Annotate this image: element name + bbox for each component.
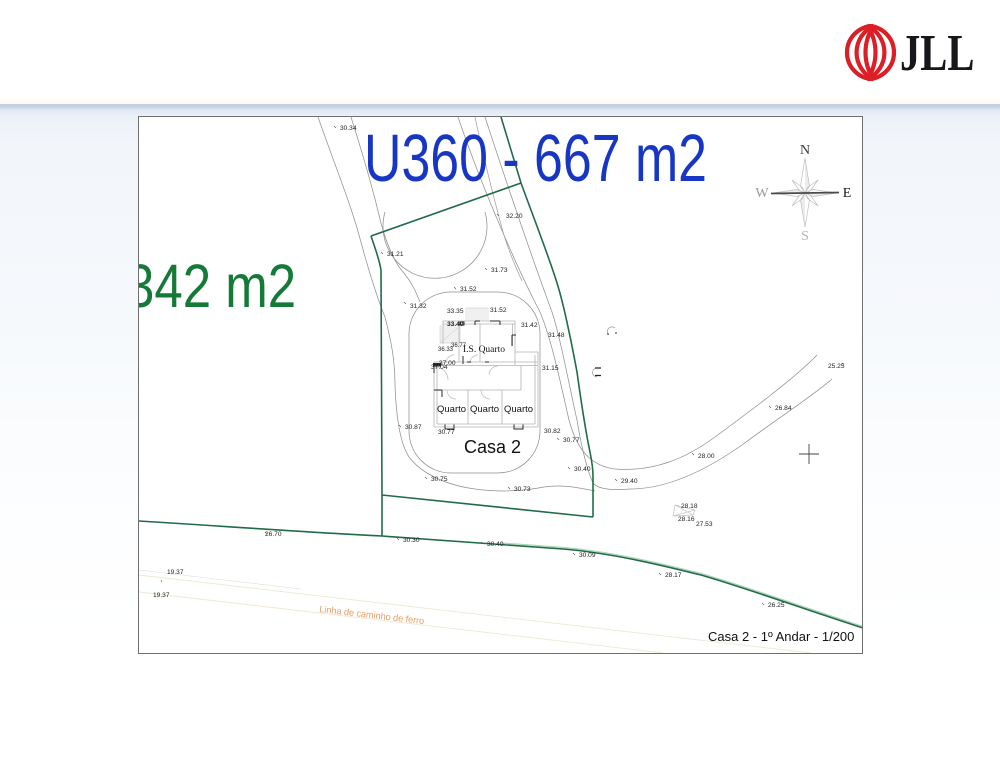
svg-text:33.35: 33.35 — [447, 308, 464, 315]
svg-text:33.40: 33.40 — [447, 321, 464, 328]
svg-text:30.75: 30.75 — [431, 476, 448, 483]
svg-text:S: S — [801, 229, 809, 244]
svg-text:N: N — [800, 143, 810, 158]
svg-text:30.87: 30.87 — [405, 424, 422, 431]
svg-text:19.37: 19.37 — [167, 569, 184, 576]
svg-text:30.30: 30.30 — [403, 537, 420, 544]
svg-text:Casa 2: Casa 2 — [464, 437, 521, 457]
svg-text:37.04: 37.04 — [431, 364, 448, 371]
svg-text:30.82: 30.82 — [544, 428, 561, 435]
svg-text:31.15: 31.15 — [542, 365, 559, 372]
svg-text:32.20: 32.20 — [506, 213, 523, 220]
svg-text:W: W — [755, 186, 769, 201]
svg-text:30.73: 30.73 — [514, 486, 531, 493]
svg-text:30.40: 30.40 — [487, 541, 504, 548]
svg-text:26.70: 26.70 — [265, 531, 282, 538]
svg-text:Quarto: Quarto — [437, 404, 466, 415]
svg-text:Quarto: Quarto — [470, 404, 499, 415]
svg-text:I.S. Quarto: I.S. Quarto — [463, 345, 505, 355]
svg-text:30.77: 30.77 — [438, 429, 455, 436]
svg-text:30.77: 30.77 — [563, 437, 580, 444]
svg-text:31.73: 31.73 — [491, 267, 508, 274]
svg-text:26.25: 26.25 — [768, 602, 785, 609]
svg-text:Linha de caminho de ferro: Linha de caminho de ferro — [319, 604, 425, 626]
svg-text:31.52: 31.52 — [460, 286, 477, 293]
svg-text:31.42: 31.42 — [521, 322, 538, 329]
svg-text:36.33: 36.33 — [438, 347, 454, 353]
svg-text:Casa 2 - 1º Andar - 1/200: Casa 2 - 1º Andar - 1/200 — [708, 629, 854, 644]
svg-text:28.00: 28.00 — [698, 453, 715, 460]
svg-text:25.25: 25.25 — [828, 363, 845, 370]
svg-text:19.37: 19.37 — [153, 592, 170, 599]
svg-text:31.52: 31.52 — [490, 307, 507, 314]
svg-text:30.09: 30.09 — [579, 552, 596, 559]
svg-text:26.84: 26.84 — [775, 405, 792, 412]
svg-text:28.17: 28.17 — [665, 572, 682, 579]
svg-text:28.16: 28.16 — [678, 516, 695, 523]
svg-text:30.40: 30.40 — [574, 466, 591, 473]
svg-text:29.40: 29.40 — [621, 478, 638, 485]
svg-text:31.21: 31.21 — [387, 251, 404, 258]
svg-text:30.34: 30.34 — [340, 125, 357, 132]
svg-text:28.18: 28.18 — [681, 503, 698, 510]
svg-text:Quarto: Quarto — [504, 404, 533, 415]
svg-text:31.48: 31.48 — [548, 332, 565, 339]
svg-text:27.53: 27.53 — [696, 521, 713, 528]
svg-text:31.32: 31.32 — [410, 303, 427, 310]
svg-text:JLL: JLL — [900, 24, 974, 82]
svg-text:E: E — [843, 186, 852, 201]
